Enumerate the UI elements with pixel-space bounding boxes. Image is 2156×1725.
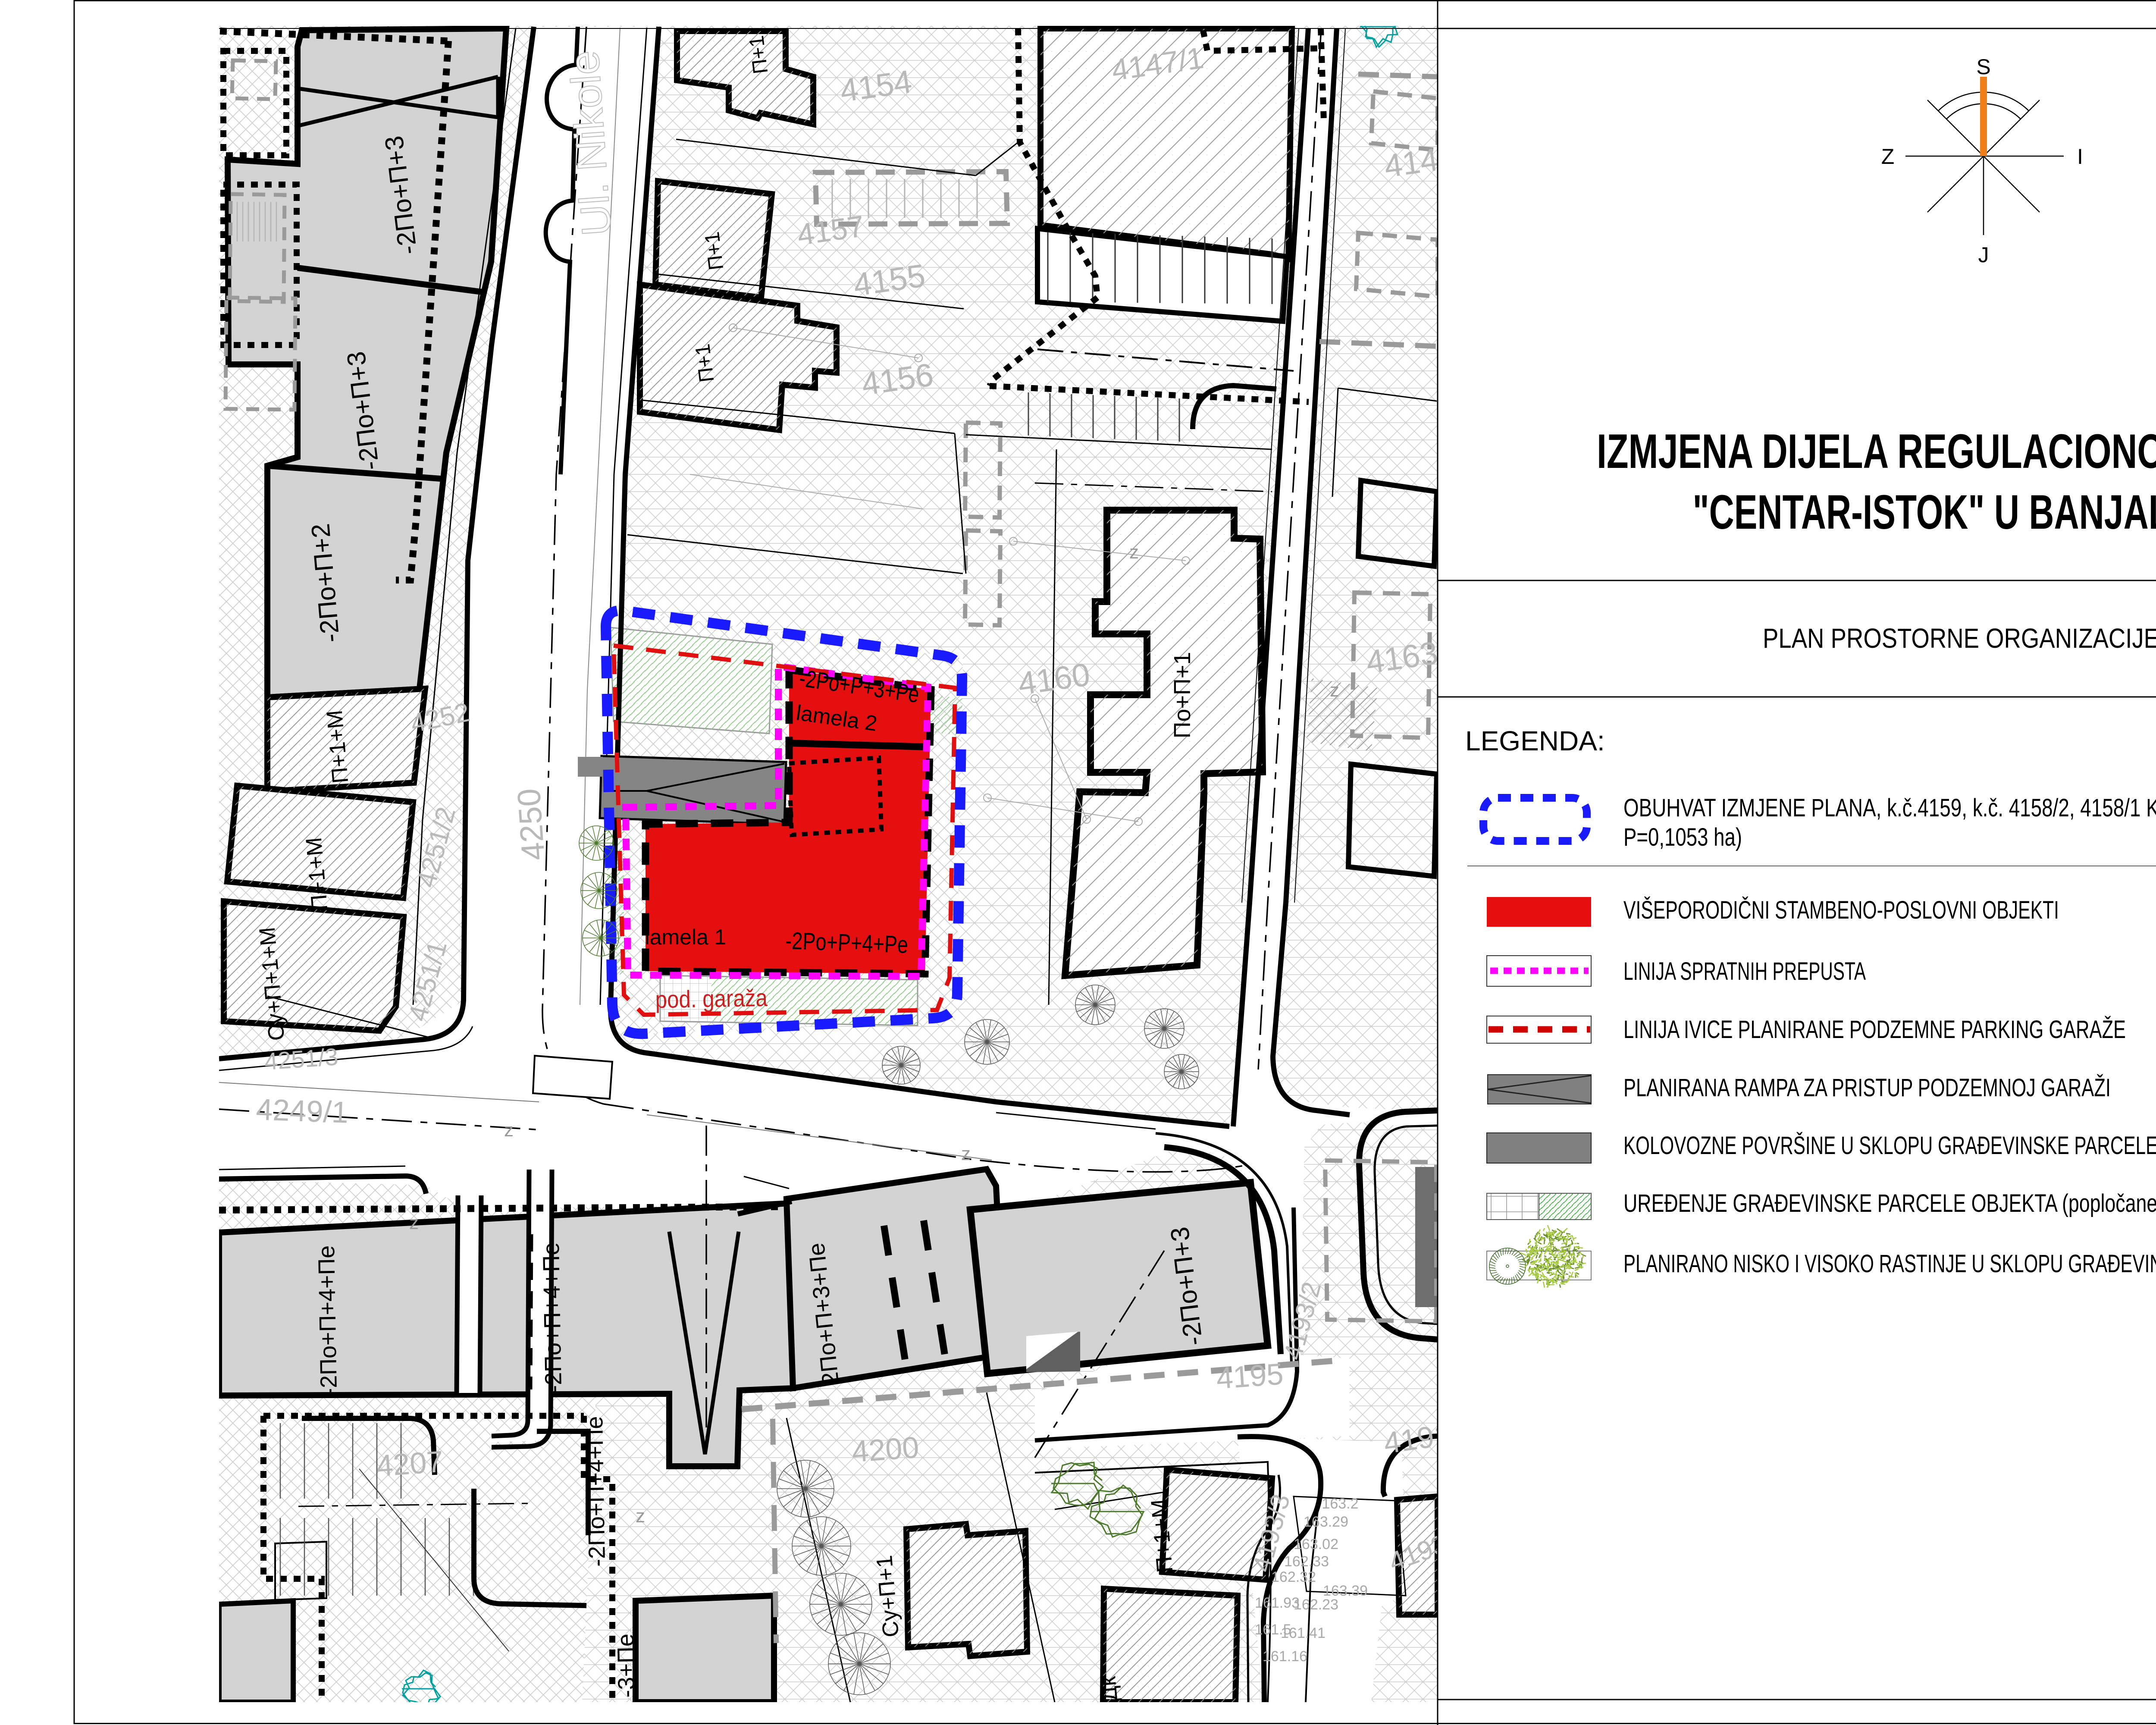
svg-text:163.39: 163.39 (1323, 1583, 1368, 1599)
svg-text:-2Po+P+4+Pe: -2Po+P+4+Pe (785, 927, 909, 958)
svg-text:-3+Пе: -3+Пе (613, 1634, 640, 1698)
svg-text:IZMJENA DIJELA REGULACIONOG PL: IZMJENA DIJELA REGULACIONOG PLANA (1597, 424, 2156, 478)
svg-text:4249/1: 4249/1 (255, 1092, 349, 1129)
svg-text:-2По+П+4+Пе: -2По+П+4+Пе (313, 1245, 342, 1396)
svg-text:PLANIRANO NISKO I VISOKO RASTI: PLANIRANO NISKO I VISOKO RASTINJE U SKLO… (1623, 1250, 2156, 1278)
svg-text:П+1: П+1 (691, 342, 718, 383)
svg-text:4251/3: 4251/3 (263, 1043, 339, 1075)
svg-text:VIŠEPORODIČNI STAMBENO-POSLOVN: VIŠEPORODIČNI STAMBENO-POSLOVNI OBJEKTI (1623, 896, 2059, 924)
svg-text:+Дк: +Дк (1095, 1675, 1124, 1716)
svg-text:4195: 4195 (1215, 1357, 1285, 1396)
svg-text:z: z (636, 1505, 645, 1527)
svg-text:z: z (504, 1120, 514, 1141)
svg-text:LEGENDA:: LEGENDA: (1465, 725, 1605, 756)
svg-text:lamela 1: lamela 1 (645, 925, 727, 949)
svg-text:163.2: 163.2 (1322, 1496, 1358, 1512)
svg-text:Z: Z (1881, 144, 1895, 169)
svg-text:161.16: 161.16 (1263, 1648, 1307, 1665)
svg-text:-2По+П+4+Пе: -2По+П+4+Пе (538, 1242, 567, 1393)
svg-text:По+П+1: По+П+1 (1169, 652, 1195, 739)
svg-text:162.32: 162.32 (1271, 1569, 1316, 1585)
svg-text:LINIJA SPRATNIH PREPUSTA: LINIJA SPRATNIH PREPUSTA (1623, 957, 1866, 985)
svg-text:-2По+П+4+Пе: -2По+П+4+Пе (582, 1416, 610, 1567)
svg-text:163.02: 163.02 (1294, 1536, 1338, 1552)
svg-text:z: z (409, 1212, 419, 1233)
svg-text:П+1: П+1 (745, 34, 772, 75)
svg-text:OBUHVAT IZMJENE PLANA, k.č.415: OBUHVAT IZMJENE PLANA, k.č.4159, k.č. 41… (1623, 794, 2156, 822)
svg-text:"CENTAR-ISTOK" U BANJALUCI: "CENTAR-ISTOK" U BANJALUCI (1693, 485, 2156, 539)
svg-text:PLANIRANA RAMPA ZA PRISTUP POD: PLANIRANA RAMPA ZA PRISTUP PODZEMNOJ GAR… (1623, 1074, 2111, 1102)
svg-text:162.33: 162.33 (1284, 1553, 1329, 1570)
svg-text:4250: 4250 (510, 787, 551, 862)
svg-text:I: I (2077, 144, 2083, 169)
svg-text:П+1: П+1 (701, 230, 728, 271)
svg-text:4200: 4200 (851, 1430, 920, 1469)
svg-text:PLAN PROSTORNE ORGANIZACIJE: PLAN PROSTORNE ORGANIZACIJE (1763, 623, 2156, 654)
svg-text:pod. garaža: pod. garaža (655, 984, 768, 1013)
svg-text:KOLOVOZNE POVRŠINE U SKLOPU GR: KOLOVOZNE POVRŠINE U SKLOPU GRAĐEVINSKE … (1623, 1132, 2156, 1160)
svg-text:163.29: 163.29 (1304, 1514, 1348, 1530)
svg-text:S: S (1976, 55, 1990, 79)
svg-text:4207: 4207 (375, 1445, 445, 1483)
svg-text:161.93: 161.93 (1255, 1595, 1300, 1611)
svg-text:J: J (1978, 243, 1989, 267)
svg-text:P=0,1053 ha): P=0,1053 ha) (1623, 823, 1742, 851)
svg-text:z: z (1330, 680, 1339, 701)
svg-text:z: z (961, 1143, 971, 1164)
svg-text:161.41: 161.41 (1281, 1625, 1326, 1641)
svg-text:z: z (1129, 542, 1139, 563)
svg-text:LINIJA IVICE PLANIRANE PODZEMN: LINIJA IVICE PLANIRANE PODZEMNE PARKING … (1623, 1016, 2126, 1044)
svg-text:UREĐENJE GRAĐEVINSKE PARCELE O: UREĐENJE GRAĐEVINSKE PARCELE OBJEKTA (po… (1623, 1189, 2156, 1217)
